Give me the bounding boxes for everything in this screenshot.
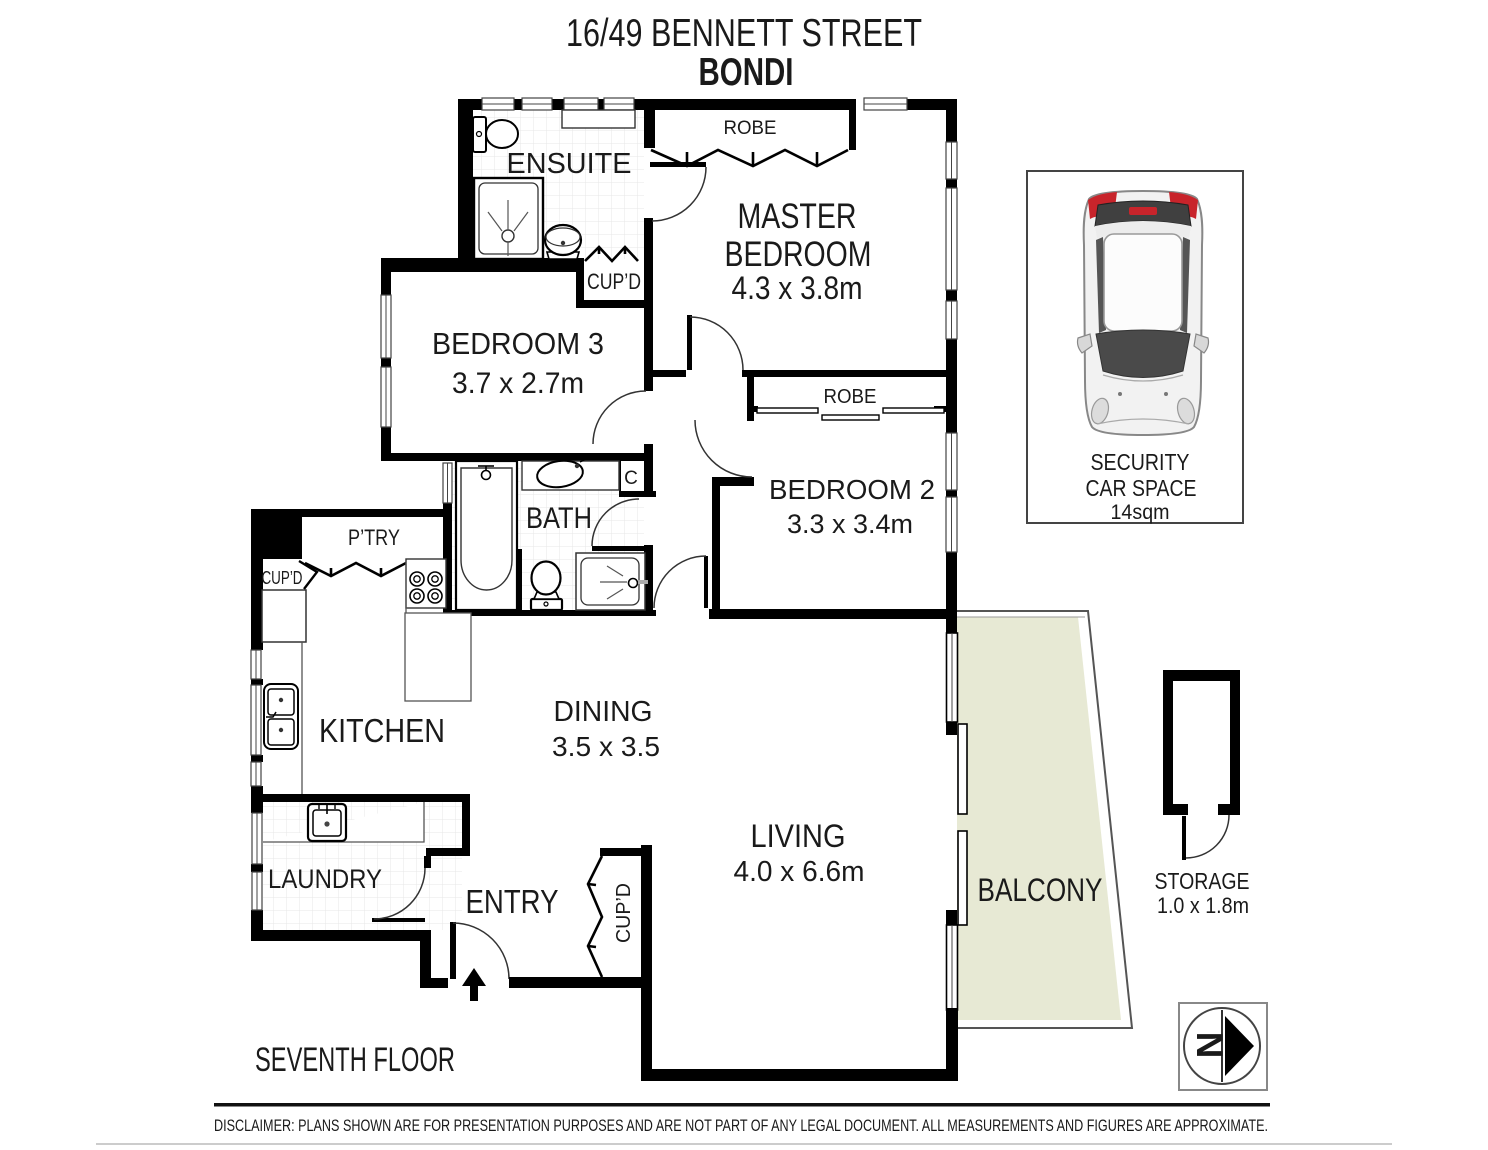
svg-text:DISCLAIMER: PLANS SHOWN ARE F: DISCLAIMER: PLANS SHOWN ARE FOR PRESENTA… <box>214 1117 1268 1135</box>
svg-text:3.5 x 3.5: 3.5 x 3.5 <box>552 731 660 762</box>
svg-text:CUP’D: CUP’D <box>262 568 303 588</box>
svg-text:ENTRY: ENTRY <box>466 883 559 920</box>
svg-text:KITCHEN: KITCHEN <box>319 712 445 749</box>
svg-text:3.3 x 3.4m: 3.3 x 3.4m <box>787 509 913 539</box>
svg-text:CUP’D: CUP’D <box>587 269 641 294</box>
svg-text:1.0 x 1.8m: 1.0 x 1.8m <box>1157 893 1249 918</box>
svg-text:BONDI: BONDI <box>699 51 794 94</box>
svg-text:ROBE: ROBE <box>824 386 877 408</box>
svg-text:BEDROOM 3: BEDROOM 3 <box>432 326 604 361</box>
svg-text:BEDROOM 2: BEDROOM 2 <box>769 474 935 505</box>
svg-text:BATH: BATH <box>526 502 592 535</box>
svg-text:DINING: DINING <box>554 696 653 728</box>
svg-text:3.7 x 2.7m: 3.7 x 2.7m <box>452 367 584 400</box>
svg-text:BEDROOM: BEDROOM <box>725 235 872 274</box>
svg-text:ROBE: ROBE <box>724 117 777 139</box>
svg-text:SEVENTH FLOOR: SEVENTH FLOOR <box>255 1041 455 1079</box>
svg-text:P’TRY: P’TRY <box>348 525 400 550</box>
svg-text:MASTER: MASTER <box>738 197 857 236</box>
svg-text:STORAGE: STORAGE <box>1155 868 1250 894</box>
svg-text:LIVING: LIVING <box>751 818 846 854</box>
svg-text:16/49 BENNETT STREET: 16/49 BENNETT STREET <box>566 12 922 55</box>
svg-text:14sqm: 14sqm <box>1111 501 1170 524</box>
svg-text:SECURITY: SECURITY <box>1091 449 1190 475</box>
svg-text:N: N <box>1189 1032 1230 1059</box>
svg-text:4.3 x 3.8m: 4.3 x 3.8m <box>732 270 863 306</box>
svg-text:CUP’D: CUP’D <box>613 883 635 943</box>
svg-text:4.0 x 6.6m: 4.0 x 6.6m <box>734 856 865 888</box>
svg-text:ENSUITE: ENSUITE <box>507 148 632 180</box>
svg-text:CAR SPACE: CAR SPACE <box>1086 475 1197 501</box>
svg-text:BALCONY: BALCONY <box>978 872 1103 908</box>
svg-text:LAUNDRY: LAUNDRY <box>268 864 382 894</box>
svg-text:C: C <box>624 468 638 489</box>
